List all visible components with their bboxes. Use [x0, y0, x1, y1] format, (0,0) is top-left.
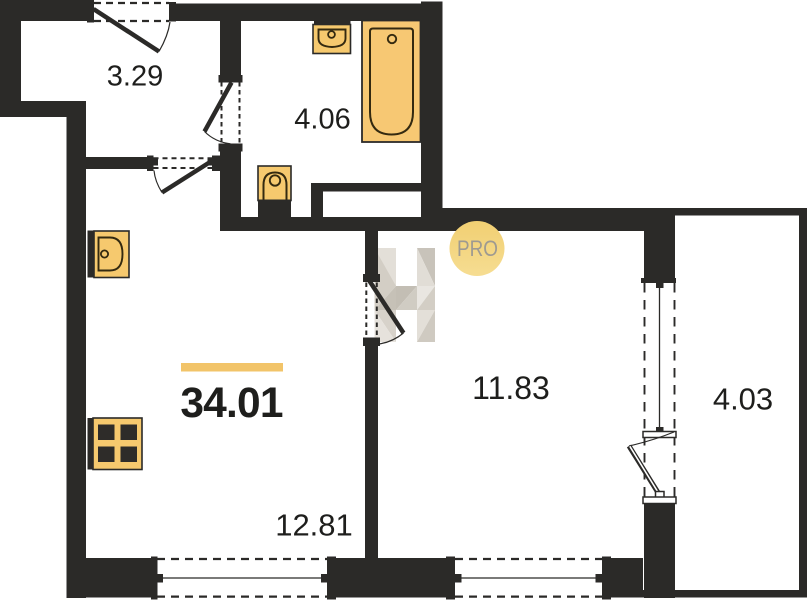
svg-text:4.06: 4.06: [294, 103, 350, 135]
svg-text:12.81: 12.81: [275, 508, 353, 543]
svg-text:34.01: 34.01: [180, 380, 283, 427]
svg-text:4.03: 4.03: [713, 382, 773, 417]
svg-text:11.83: 11.83: [472, 370, 550, 406]
svg-text:PRO: PRO: [457, 236, 498, 261]
svg-text:3.29: 3.29: [107, 60, 163, 92]
